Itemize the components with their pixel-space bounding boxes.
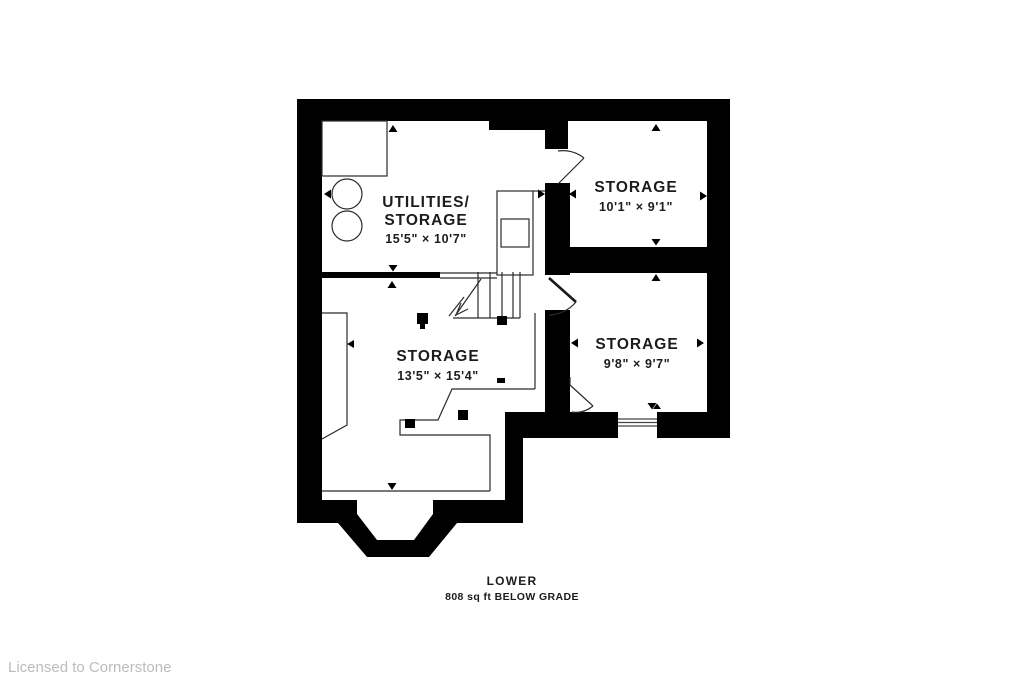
tick-down-icon xyxy=(389,265,398,272)
room-label-storage-main: STORAGE xyxy=(396,348,479,365)
room-label-storage-top-right: STORAGE xyxy=(594,179,677,196)
tick-down-icon xyxy=(388,483,397,490)
laundry-tub-icon xyxy=(332,179,362,209)
chimney-or-duct xyxy=(501,219,529,247)
license-watermark: Licensed to Cornerstone xyxy=(8,659,171,676)
wall-top-notch xyxy=(489,99,545,130)
stair-base-post xyxy=(497,316,507,325)
tick-left-icon xyxy=(569,190,576,199)
post-icon xyxy=(417,313,428,324)
wall-column-lower xyxy=(545,310,570,412)
room-label-utilities-line1: UTILITIES/ xyxy=(382,194,470,211)
room-dims-utilities: 15'5" × 10'7" xyxy=(385,232,467,246)
post-icon xyxy=(458,410,468,420)
room-label-utilities-line2: STORAGE xyxy=(384,212,467,229)
exterior-and-interior-walls xyxy=(297,99,730,557)
tick-up-icon xyxy=(388,281,397,288)
level-label: LOWER xyxy=(487,574,538,588)
door-leaf xyxy=(558,158,584,184)
wall-between-right-rooms xyxy=(545,247,730,273)
tick-right-icon xyxy=(697,339,704,348)
stairs xyxy=(449,272,520,325)
room-dims-storage-mid-right: 9'8" × 9'7" xyxy=(604,357,670,371)
room-dims-storage-top-right: 10'1" × 9'1" xyxy=(599,200,673,214)
floorplan-page: UTILITIES/ STORAGE 15'5" × 10'7" STORAGE… xyxy=(0,0,1024,681)
post-icon xyxy=(420,324,425,329)
floorplan-drawing: UTILITIES/ STORAGE 15'5" × 10'7" STORAGE… xyxy=(0,0,1024,681)
stair-direction-arrow xyxy=(455,279,481,316)
wall-stub-hall xyxy=(545,99,568,149)
door-leaf xyxy=(549,278,576,302)
tick-down-icon xyxy=(652,239,661,246)
closet-outline xyxy=(322,121,387,176)
door-to-mid-storage xyxy=(549,278,576,315)
tick-right-icon xyxy=(700,192,707,201)
angled-wall-feature xyxy=(322,313,347,439)
wall-utilities-south xyxy=(322,272,440,278)
area-label: 808 sq ft BELOW GRADE xyxy=(445,591,579,603)
window-bottom-right xyxy=(618,412,657,438)
tick-left-icon xyxy=(347,340,354,348)
tick-up-icon xyxy=(389,125,398,132)
post-icon xyxy=(497,378,505,383)
tick-up-icon xyxy=(652,274,661,281)
door-swing-arc xyxy=(572,406,593,412)
window-opening xyxy=(618,412,657,438)
room-dims-storage-main: 13'5" × 15'4" xyxy=(397,369,479,383)
tick-left-icon xyxy=(571,339,578,348)
door-swing-arc xyxy=(558,151,584,158)
post-icon xyxy=(405,419,415,428)
room-label-storage-mid-right: STORAGE xyxy=(595,336,678,353)
tick-up-icon xyxy=(652,124,661,131)
door-mid-storage-lower xyxy=(570,377,593,412)
plan-caption: LOWER 808 sq ft BELOW GRADE xyxy=(445,574,579,603)
tick-left-icon xyxy=(324,190,331,199)
stair-enclosure xyxy=(497,191,533,275)
wall-left xyxy=(297,99,322,523)
door-leaf xyxy=(570,385,593,406)
door-to-top-storage xyxy=(558,151,584,184)
room-labels: UTILITIES/ STORAGE 15'5" × 10'7" STORAGE… xyxy=(382,179,678,383)
laundry-tub-icon xyxy=(332,211,362,241)
